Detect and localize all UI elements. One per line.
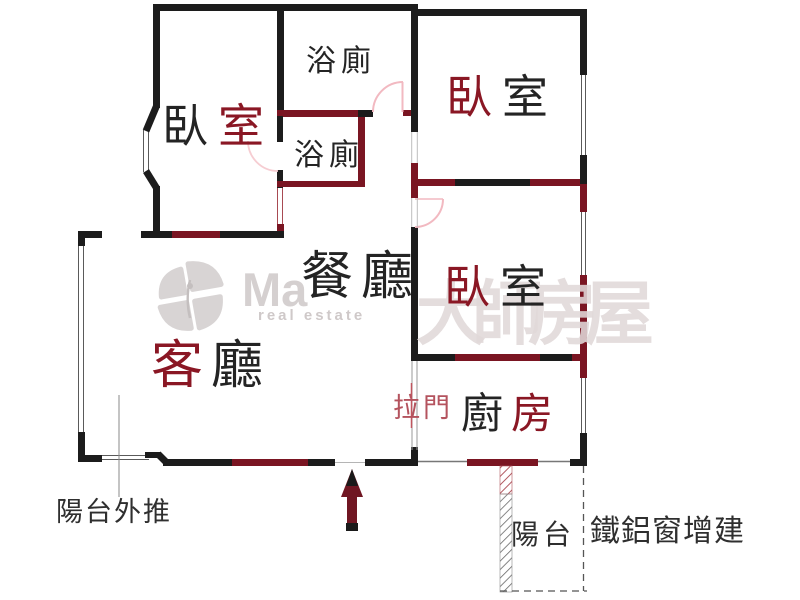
door-arc-bathroom-top: [373, 82, 403, 112]
room-label-char: 廳: [361, 251, 413, 303]
wall-center-lower: [411, 447, 418, 466]
angled-wall-segments: [146, 106, 167, 463]
wall-div3k-1: [411, 354, 455, 361]
window-right-1: [581, 75, 586, 155]
wall-div23-3: [530, 179, 587, 186]
wall-bottom-2: [232, 459, 308, 466]
wall-step-upper: [145, 452, 161, 458]
room-label-bathroom-ensuite: 浴 廁: [294, 141, 359, 171]
room-label-char: 廁: [329, 141, 359, 171]
room-label-char: 房: [511, 393, 553, 435]
wall-ensuite-left-upper: [277, 116, 283, 142]
window-bedroom1-left: [143, 130, 149, 172]
room-label-dining: 餐 廳: [301, 251, 413, 303]
room-label-char: 廁: [341, 47, 371, 77]
wall-living-topleft-v: [78, 231, 85, 246]
room-label-living: 客 廳: [151, 340, 263, 392]
wall-center-upper: [411, 4, 418, 132]
room-label-char: 廚: [461, 393, 503, 435]
wall-top-left: [153, 4, 418, 11]
room-label-char: 客: [151, 340, 203, 392]
room-label-char: 室: [218, 103, 264, 149]
wall-bedroom1-left-upper: [153, 4, 160, 108]
window-living-bottom: [102, 455, 149, 460]
wall-kitchen-bottom-maroon: [467, 459, 538, 466]
wall-div23-2: [455, 179, 530, 186]
balcony-pushed-out-label: 陽台外推: [56, 499, 172, 526]
room-label-char: 臥: [446, 74, 492, 120]
room-label-kitchen: 廚 房: [461, 393, 553, 435]
wall-living-bottomleft-h: [78, 455, 102, 462]
window-bedroom1-right: [277, 187, 283, 226]
wall-kitchen-bottom-corner: [570, 459, 587, 466]
wall-ensuite-right: [358, 117, 365, 187]
room-label-bedroom-top-left: 臥 室: [162, 103, 264, 149]
room-label-char: 浴: [306, 47, 336, 77]
wall-right-3: [580, 184, 587, 212]
wall-div3k-2: [455, 354, 540, 361]
watermark-brand-text: Ma: [242, 262, 307, 317]
wall-div3k-3: [540, 354, 572, 361]
room-label-bedroom-top-right: 臥 室: [446, 74, 548, 120]
wall-right-4: [580, 275, 587, 378]
window-right-3: [581, 378, 586, 433]
room-label-char: 餐: [301, 251, 353, 303]
wall-bottom-1: [163, 459, 232, 466]
wall-bedroom1-right: [277, 4, 284, 116]
wall-div23-1: [411, 179, 455, 186]
metal-window-addition-label: 鐵鋁窗增建: [590, 517, 745, 547]
sliding-door-label: 拉門: [393, 395, 453, 422]
wall-right-1: [580, 9, 587, 75]
wall-bedroom1-bottom-3: [220, 231, 284, 238]
room-label-bedroom-mid-right: 臥 室: [444, 264, 546, 310]
wall-bedroom1-bottom-1: [141, 231, 172, 238]
room-label-bathroom-top: 浴 廁: [306, 47, 371, 77]
floor-plan: Ma real estate 大師房屋 臥 室 浴 廁 浴 廁 臥 室 臥 室 …: [0, 0, 800, 600]
wall-ensuite-bottom: [277, 181, 365, 187]
wall-bottom-3: [308, 459, 335, 466]
watermark-tagline: real estate: [258, 307, 365, 324]
room-label-char: 浴: [294, 141, 324, 171]
watermark-logo: [148, 256, 232, 340]
wall-bath-band-black: [358, 110, 373, 117]
door-arc-bedroom-mid-right: [415, 199, 443, 227]
entrance-arrow: [341, 469, 363, 531]
room-label-char: 室: [502, 74, 548, 120]
window-living-left: [78, 246, 84, 432]
room-label-char: 室: [500, 264, 546, 310]
window-right-2: [581, 212, 586, 275]
wall-bath-band-maroon: [277, 110, 358, 117]
wall-bedroom1-bottom-2: [172, 231, 220, 238]
room-label-char: 廳: [211, 340, 263, 392]
wall-top-right: [411, 9, 587, 16]
balcony-label: 陽台: [511, 521, 575, 549]
room-label-char: 臥: [162, 103, 208, 149]
wall-right-2: [580, 155, 587, 184]
room-label-char: 臥: [444, 264, 490, 310]
